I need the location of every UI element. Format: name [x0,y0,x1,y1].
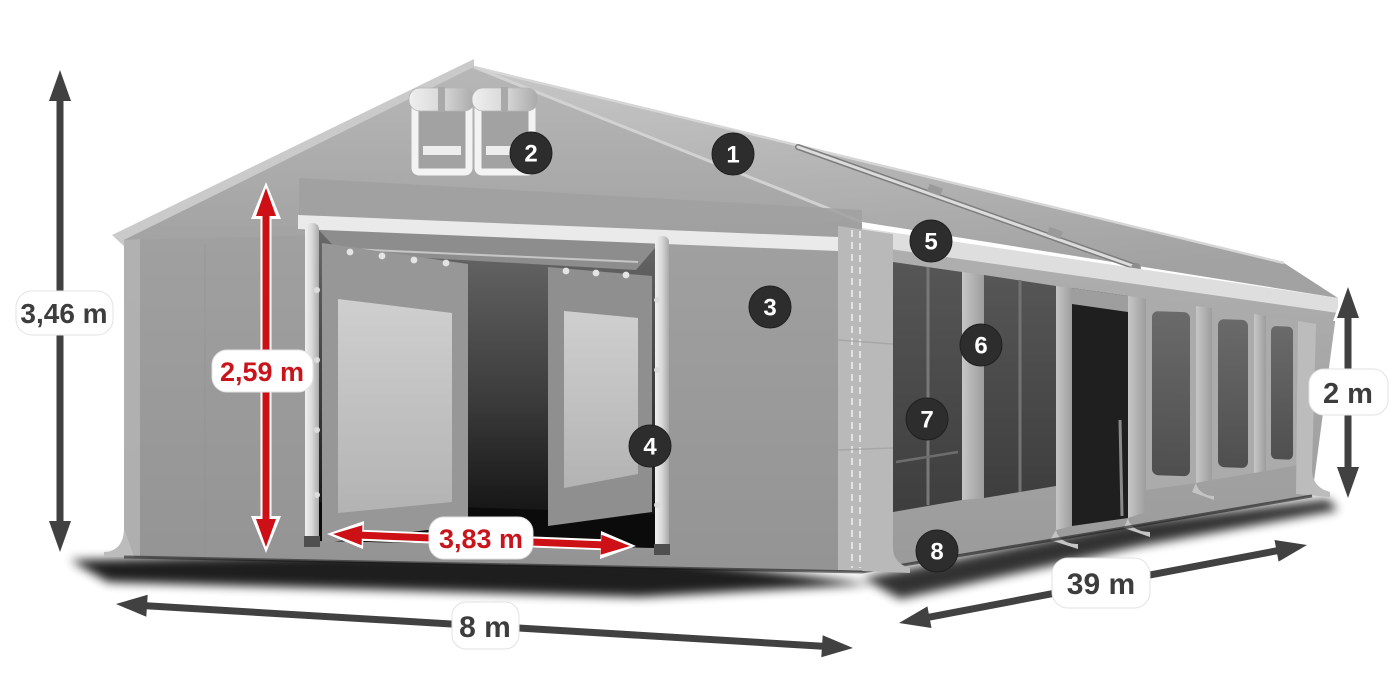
front-width-label: 8 m [459,611,511,644]
jamb-knob [314,287,320,293]
roof-vent-left [409,87,475,172]
door-window [338,299,452,513]
jamb-foot [654,544,670,555]
jamb-knob [654,502,660,508]
feature-marker-3[interactable]: 3 [749,286,791,328]
jamb-foot [304,536,320,547]
vent-roll-gap [438,87,445,112]
feature-marker-7[interactable]: 7 [906,398,948,440]
feature-marker-5[interactable]: 5 [910,220,952,262]
door-hook [563,268,570,275]
door-hook [347,249,354,256]
total-height-label: 3,46 m [20,298,107,329]
feature-marker-1[interactable]: 1 [712,133,754,175]
marker-number: 5 [924,229,937,256]
entrance-opening [318,229,660,548]
bay-sleeve [1128,296,1146,518]
marker-number: 2 [524,141,537,168]
tent-dimensions-diagram: 3,46 m 2,59 m 3,83 m 8 m [0,0,1400,700]
marker-number: 3 [763,295,776,322]
feature-marker-2[interactable]: 2 [510,132,552,174]
entrance-width-label: 3,83 m [439,524,523,554]
left-door-leaf [322,243,468,543]
jamb-knob [314,492,320,498]
marker-number: 8 [930,539,943,566]
marker-number: 1 [726,142,739,169]
length-label: 39 m [1067,568,1135,601]
jamb-knob [314,427,320,433]
dimension-front-width: 8 m [109,591,860,661]
marker-number: 4 [643,434,657,461]
diagram-canvas: 3,46 m 2,59 m 3,83 m 8 m [0,0,1400,700]
side-window-3 [1271,326,1293,460]
marker-number: 7 [920,407,933,434]
jamb-knob [654,367,660,373]
bay-mullion-sleeve [962,272,984,500]
side-doorway-pole [1120,420,1122,516]
vent-bar [423,146,461,155]
side-window-1 [1152,311,1190,476]
entrance-height-label: 2,59 m [220,357,304,387]
tent-illustration [104,59,1338,573]
side-doorway-opening [1072,288,1128,526]
side-window-2 [1218,319,1248,468]
feature-marker-6[interactable]: 6 [960,324,1002,366]
door-hook [623,272,630,279]
marker-number: 6 [974,333,987,360]
door-window [564,311,638,488]
door-hook [443,260,450,267]
entrance-right-jamb [654,236,670,555]
door-hook [593,270,600,277]
vent-roll-gap [501,87,508,112]
right-door-leaf [548,267,652,526]
bay-sleeve [1254,314,1266,473]
feature-marker-4[interactable]: 4 [629,425,671,467]
jamb-knob [654,297,660,303]
bay-sleeve [1196,306,1212,483]
jamb-knob [314,357,320,363]
door-hook [411,257,418,264]
bay-sleeve [1056,286,1072,530]
feature-marker-8[interactable]: 8 [916,530,958,572]
door-hook [379,253,386,260]
dimension-total-height: 3,46 m [16,63,113,559]
side-height-label: 2 m [1323,378,1373,410]
front-left-corner-fold [124,239,140,557]
